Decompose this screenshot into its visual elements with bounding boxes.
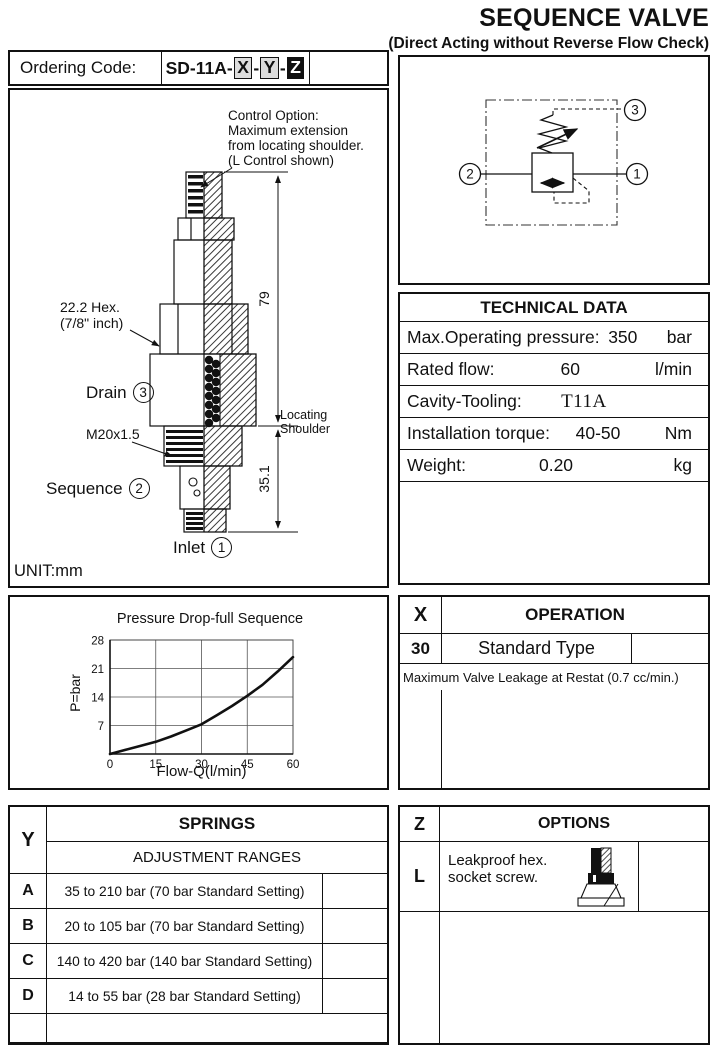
option-label-l: Leakproof hex. socket screw.	[440, 842, 639, 911]
tech-unit: kg	[646, 455, 708, 476]
ordering-code-box: Ordering Code: SD-11A-X-Y-Z	[8, 50, 389, 86]
option-text: Leakproof hex. socket screw.	[448, 852, 547, 886]
drain-port-label: Drain 3	[86, 382, 154, 403]
chart-ylabel: P=bar	[67, 674, 83, 712]
option-code-l: L	[400, 842, 440, 911]
sequence-port-label: Sequence 2	[46, 478, 150, 499]
spring-coils	[205, 356, 220, 427]
chart-xlabel: Flow-Q(l/min)	[110, 763, 293, 780]
technical-data-table: TECHNICAL DATA Max.Operating pressure: 3…	[398, 292, 710, 585]
code-y-box: Y	[260, 57, 279, 78]
tech-label: Installation torque:	[400, 423, 550, 444]
symbol-drain-line	[553, 109, 626, 115]
operation-empty-column	[400, 690, 442, 788]
tech-row-cavity: Cavity-Tooling: T11A	[400, 386, 708, 418]
ordering-code-label: Ordering Code:	[10, 52, 162, 84]
hex-size-note: 22.2 Hex. (7/8" inch)	[60, 300, 123, 331]
spring-code: A	[10, 874, 47, 908]
leakproof-screw-icon	[574, 847, 628, 909]
control-option-note: Control Option: Maximum extension from l…	[228, 108, 364, 168]
tech-row-torque: Installation torque: 40-50 Nm	[400, 418, 708, 450]
spring-empty-cell	[323, 979, 387, 1013]
spring-row-a: A 35 to 210 bar (70 bar Standard Setting…	[10, 874, 387, 909]
code-dash-2: -	[280, 58, 286, 79]
spring-code: B	[10, 909, 47, 943]
spring-code: D	[10, 979, 47, 1013]
spring-range: 140 to 420 bar (140 bar Standard Setting…	[47, 944, 323, 978]
option-empty-cell	[639, 842, 708, 911]
spring-empty-cell	[323, 944, 387, 978]
spring-row-d: D 14 to 55 bar (28 bar Standard Setting)	[10, 979, 387, 1014]
page-header: SEQUENCE VALVE (Direct Acting without Re…	[388, 4, 709, 53]
code-x-box: X	[234, 57, 253, 78]
spring-empty-cell	[323, 874, 387, 908]
port-3-circle: 3	[133, 382, 154, 403]
tech-value: 60	[495, 359, 646, 380]
operation-title: OPERATION	[442, 597, 708, 633]
page-subtitle: (Direct Acting without Reverse Flow Chec…	[388, 35, 709, 53]
tech-row-pressure: Max.Operating pressure: 350 bar	[400, 322, 708, 354]
spring-row-c: C 140 to 420 bar (140 bar Standard Setti…	[10, 944, 387, 979]
ordering-code-value: SD-11A-X-Y-Z	[162, 52, 310, 84]
spring-row-b: B 20 to 105 bar (70 bar Standard Setting…	[10, 909, 387, 944]
tech-value: 40-50	[550, 423, 646, 444]
springs-table: Y SPRINGS ADJUSTMENT RANGES A 35 to 210 …	[8, 805, 389, 1045]
datasheet-page: SEQUENCE VALVE (Direct Acting without Re…	[0, 0, 711, 1053]
tech-unit: Nm	[646, 423, 708, 444]
dim-79-label: 79	[256, 291, 272, 307]
springs-title: SPRINGS	[47, 807, 387, 842]
schematic-box: 3 2 1	[398, 55, 710, 285]
tech-unit: l/min	[646, 359, 708, 380]
code-dash-1: -	[253, 58, 259, 79]
spring-empty-cell	[323, 909, 387, 943]
tech-label: Max.Operating pressure:	[400, 327, 600, 348]
symbol-spring	[539, 115, 566, 153]
springs-empty-column	[10, 1014, 47, 1042]
tech-label: Rated flow:	[400, 359, 495, 380]
symbol-port-1: 1	[633, 167, 641, 182]
drain-text: Drain	[86, 383, 127, 403]
operation-note: Maximum Valve Leakage at Restat (0.7 cc/…	[400, 664, 708, 690]
spring-range: 20 to 105 bar (70 bar Standard Setting)	[47, 909, 323, 943]
inlet-port-label: Inlet 1	[173, 537, 232, 558]
spring-range: 14 to 55 bar (28 bar Standard Setting)	[47, 979, 323, 1013]
tech-row-weight: Weight: 0.20 kg	[400, 450, 708, 482]
tech-value: 350	[600, 327, 646, 348]
technical-data-title: TECHNICAL DATA	[400, 294, 708, 322]
symbol-valve-body	[532, 153, 573, 192]
options-empty-column	[400, 912, 440, 1043]
tech-value: T11A	[522, 391, 646, 413]
unit-label: UNIT:mm	[14, 562, 83, 581]
operation-empty-cell	[632, 634, 708, 663]
operation-table: X OPERATION 30 Standard Type Maximum Val…	[398, 595, 710, 790]
options-header: Z OPTIONS	[400, 807, 708, 842]
ordering-code-empty-cell	[310, 52, 387, 84]
tech-label: Cavity-Tooling:	[400, 391, 522, 412]
svg-text:28: 28	[91, 636, 104, 648]
operation-code: 30	[400, 634, 442, 663]
valve-drawing-box: 79 35.1 Control Option: Maximum extensio…	[8, 88, 389, 588]
svg-text:14: 14	[91, 693, 104, 705]
symbol-port-2: 2	[466, 167, 474, 182]
port-1-circle: 1	[211, 537, 232, 558]
spring-code: C	[10, 944, 47, 978]
svg-text:7: 7	[98, 721, 104, 733]
inlet-text: Inlet	[173, 538, 205, 558]
operation-row-30: 30 Standard Type	[400, 634, 708, 664]
thread-size-note: M20x1.5	[86, 427, 140, 443]
code-z-box: Z	[287, 57, 305, 78]
operation-header: X OPERATION	[400, 597, 708, 634]
springs-subtitle: ADJUSTMENT RANGES	[47, 842, 387, 874]
pressure-chart-box: 0153045607142128 Pressure Drop-full Sequ…	[8, 595, 389, 790]
svg-text:21: 21	[91, 664, 104, 676]
locating-shoulder-note: Locating Shoulder	[280, 408, 330, 436]
sequence-text: Sequence	[46, 479, 123, 499]
tech-value: 0.20	[466, 455, 646, 476]
code-prefix: SD-11A-	[166, 58, 233, 79]
tech-row-flow: Rated flow: 60 l/min	[400, 354, 708, 386]
symbol-adjust-arrow	[537, 129, 577, 148]
tech-label: Weight:	[400, 455, 466, 476]
symbol-port-3: 3	[631, 103, 639, 118]
port-2-circle: 2	[129, 478, 150, 499]
springs-column-letter: Y	[10, 807, 47, 874]
options-title: OPTIONS	[440, 807, 708, 841]
operation-column-letter: X	[400, 597, 442, 633]
spring-range: 35 to 210 bar (70 bar Standard Setting)	[47, 874, 323, 908]
hydraulic-symbol: 3 2 1	[400, 57, 708, 283]
tech-unit: bar	[646, 327, 708, 348]
chart-title: Pressure Drop-full Sequence	[80, 611, 340, 627]
operation-name: Standard Type	[442, 634, 632, 663]
option-row-l: L Leakproof hex. socket screw.	[400, 842, 708, 912]
options-column-letter: Z	[400, 807, 440, 841]
options-table: Z OPTIONS L Leakproof hex. socket screw.	[398, 805, 710, 1045]
dim-35-label: 35.1	[256, 465, 272, 492]
page-title: SEQUENCE VALVE	[388, 4, 709, 33]
